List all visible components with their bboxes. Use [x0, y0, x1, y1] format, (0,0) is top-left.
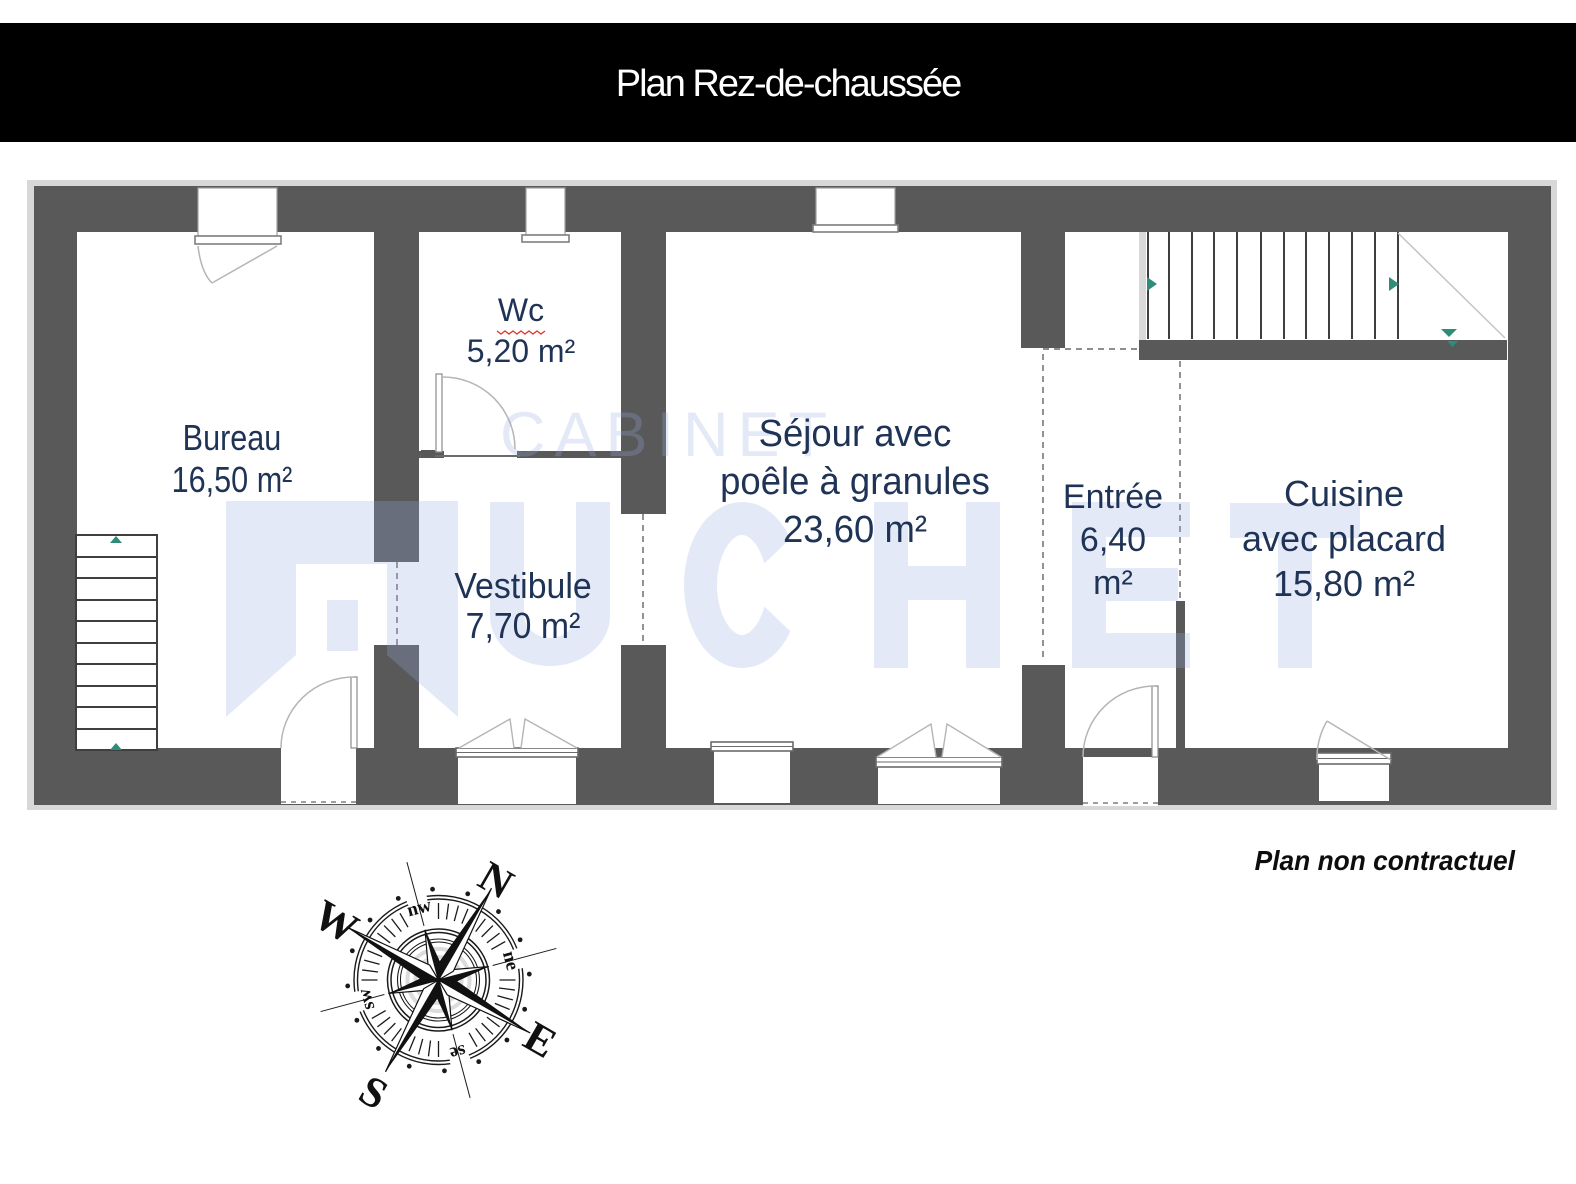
svg-text:nw: nw: [405, 895, 434, 922]
svg-text:N: N: [471, 853, 521, 909]
svg-text:S: S: [351, 1067, 395, 1120]
svg-text:se: se: [447, 1040, 468, 1064]
svg-text:W: W: [305, 891, 366, 953]
svg-text:E: E: [516, 1013, 564, 1068]
